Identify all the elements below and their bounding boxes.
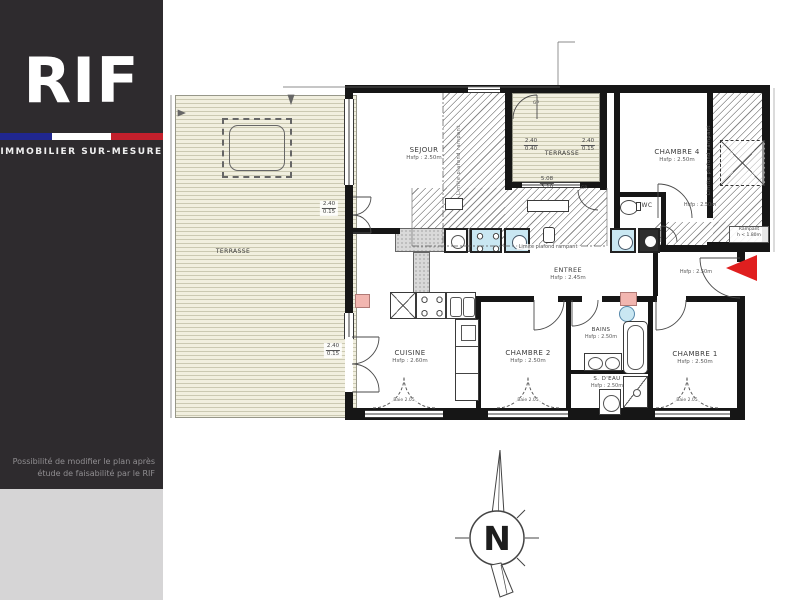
furniture [445, 198, 463, 210]
basin-symbol [618, 235, 633, 250]
room-label-chambre2: CHAMBRE 2 Hsfp : 2.50m [505, 349, 550, 364]
wall [648, 296, 653, 420]
terrace-spa-outline [222, 118, 292, 178]
wall [345, 392, 353, 420]
wall [505, 85, 512, 190]
sink-bowl [588, 357, 603, 370]
room-label-bains: BAINS Hsfp : 2.50m [585, 327, 617, 340]
room-label-chambre1: CHAMBRE 1 Hsfp : 2.50m [672, 350, 717, 365]
fixture-pink [620, 292, 637, 306]
baie-label: Baie 2.05 [515, 398, 540, 403]
hob-symbol [416, 292, 446, 319]
pod-cell-dark [638, 228, 660, 253]
roof-opening-outline [720, 140, 765, 186]
gp-label: GP [581, 186, 587, 191]
hall-table [543, 227, 555, 243]
appliance-column [455, 319, 479, 401]
fridge-symbol [390, 292, 416, 319]
terrace-spa-inner [229, 125, 285, 171]
washing-machine-symbol [599, 389, 621, 415]
wall [345, 85, 770, 93]
pod-cell [444, 228, 468, 253]
room-label-terrasse-upper: TERRASSE [545, 150, 579, 157]
wall [614, 192, 664, 197]
wall [345, 85, 353, 99]
wall [566, 296, 571, 420]
palier-height-note: Hsfp : 2.50m [684, 202, 716, 208]
entry-height-note: Hsfp : 2.50m [680, 269, 712, 275]
gp-label: GP [533, 101, 539, 106]
french-door-arcs-group [373, 377, 718, 408]
window [365, 410, 443, 418]
room-label-entree: ENTREE Hsfp : 2.45m [550, 266, 585, 281]
furniture [527, 200, 569, 212]
baie-label: Baie 2.05 [391, 398, 416, 403]
wall [476, 296, 534, 302]
roof-opening-cross [721, 141, 764, 185]
window [344, 99, 354, 185]
rampant-limit-right: Limite plafond rampant [706, 100, 712, 195]
wall [653, 252, 658, 296]
wall [707, 242, 770, 250]
pod-cell-blue [470, 228, 502, 253]
bathtub-inner [627, 325, 644, 370]
double-sink-symbol [584, 353, 622, 371]
compass-rose: N [455, 450, 539, 597]
shower-drain [633, 389, 641, 397]
rampant-limit-left: Limite plafond rampant [456, 105, 462, 195]
kitchen-sink-symbol [446, 292, 476, 319]
sink-bowl [450, 297, 462, 317]
wall [661, 192, 666, 250]
sink-bowl [605, 357, 620, 370]
room-label-cuisine: CUISINE Hsfp : 2.60m [392, 349, 427, 364]
dimension-label: 2.40 0.40 [524, 138, 538, 153]
rampant-limit-mid: Limite plafond rampant [517, 244, 580, 250]
rampant-note: Rampant h < 1.80m [729, 226, 769, 243]
basin-symbol [451, 235, 465, 249]
room-label-sejour: SEJOUR Hsfp : 2.50m [406, 146, 441, 161]
pod-cell-blue [610, 228, 636, 253]
technical-duct [413, 252, 430, 296]
floor-plan: N TERRASSE SEJOUR Hsfp : 2.50m TERRASSE … [0, 0, 800, 600]
shower-symbol [623, 376, 648, 408]
door-opening [345, 337, 353, 392]
dimension-label: 2.40 0.15 [581, 138, 595, 153]
flyer-canvas: RIF IMMOBILIER SUR-MESURE PLAN Possibili… [0, 0, 800, 600]
toilet-tank [636, 202, 641, 211]
oven-symbol [461, 325, 476, 341]
fixture-pink [355, 294, 370, 308]
window [488, 410, 568, 418]
fixture-blue-round [619, 306, 635, 322]
window [655, 410, 730, 418]
wall [600, 85, 607, 190]
wall [737, 296, 745, 420]
basin-symbol [645, 236, 656, 247]
sink-bowl [463, 297, 475, 317]
wall [345, 228, 400, 234]
window [468, 86, 500, 93]
wall [686, 296, 745, 302]
room-label-chambre4: CHAMBRE 4 Hsfp : 2.50m [654, 148, 699, 163]
dimension-label: 2.40 0.15 [324, 343, 342, 358]
dimension-label: 5.08 3.10 [540, 176, 554, 191]
entry-arrow-icon [726, 255, 757, 281]
room-label-wc: WC [642, 202, 653, 209]
window [344, 313, 354, 339]
bathtub-symbol [623, 321, 648, 374]
room-label-s-deau: S. D'EAU Hsfp : 2.50m [591, 376, 623, 389]
baie-label: Baie 2.05 [674, 398, 699, 403]
room-label-terrasse-main: TERRASSE [216, 248, 250, 255]
compass-north-label: N [483, 519, 511, 558]
washer-drum [603, 395, 620, 412]
dimension-label: 2.40 0.15 [320, 201, 338, 216]
